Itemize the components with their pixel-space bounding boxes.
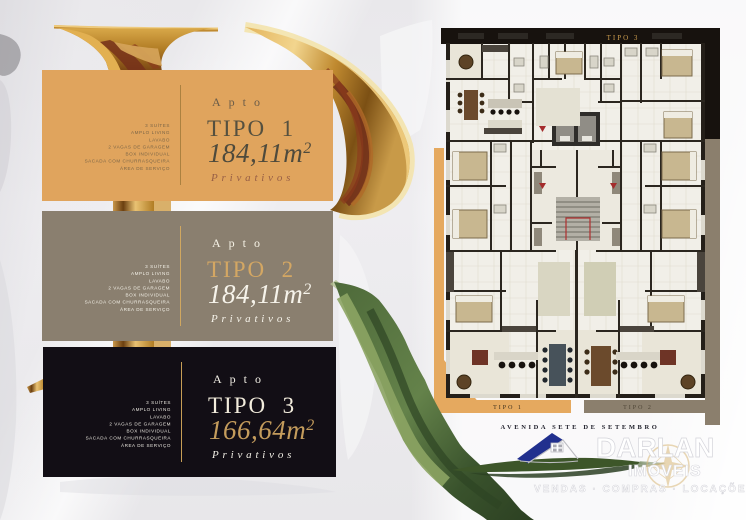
svg-text:VENDAS · COMPRAS · LOCAÇÕES: VENDAS · COMPRAS · LOCAÇÕES [534,482,746,495]
svg-text:IMÓVEIS: IMÓVEIS [628,461,702,480]
svg-text:DARLAN: DARLAN [596,432,714,463]
